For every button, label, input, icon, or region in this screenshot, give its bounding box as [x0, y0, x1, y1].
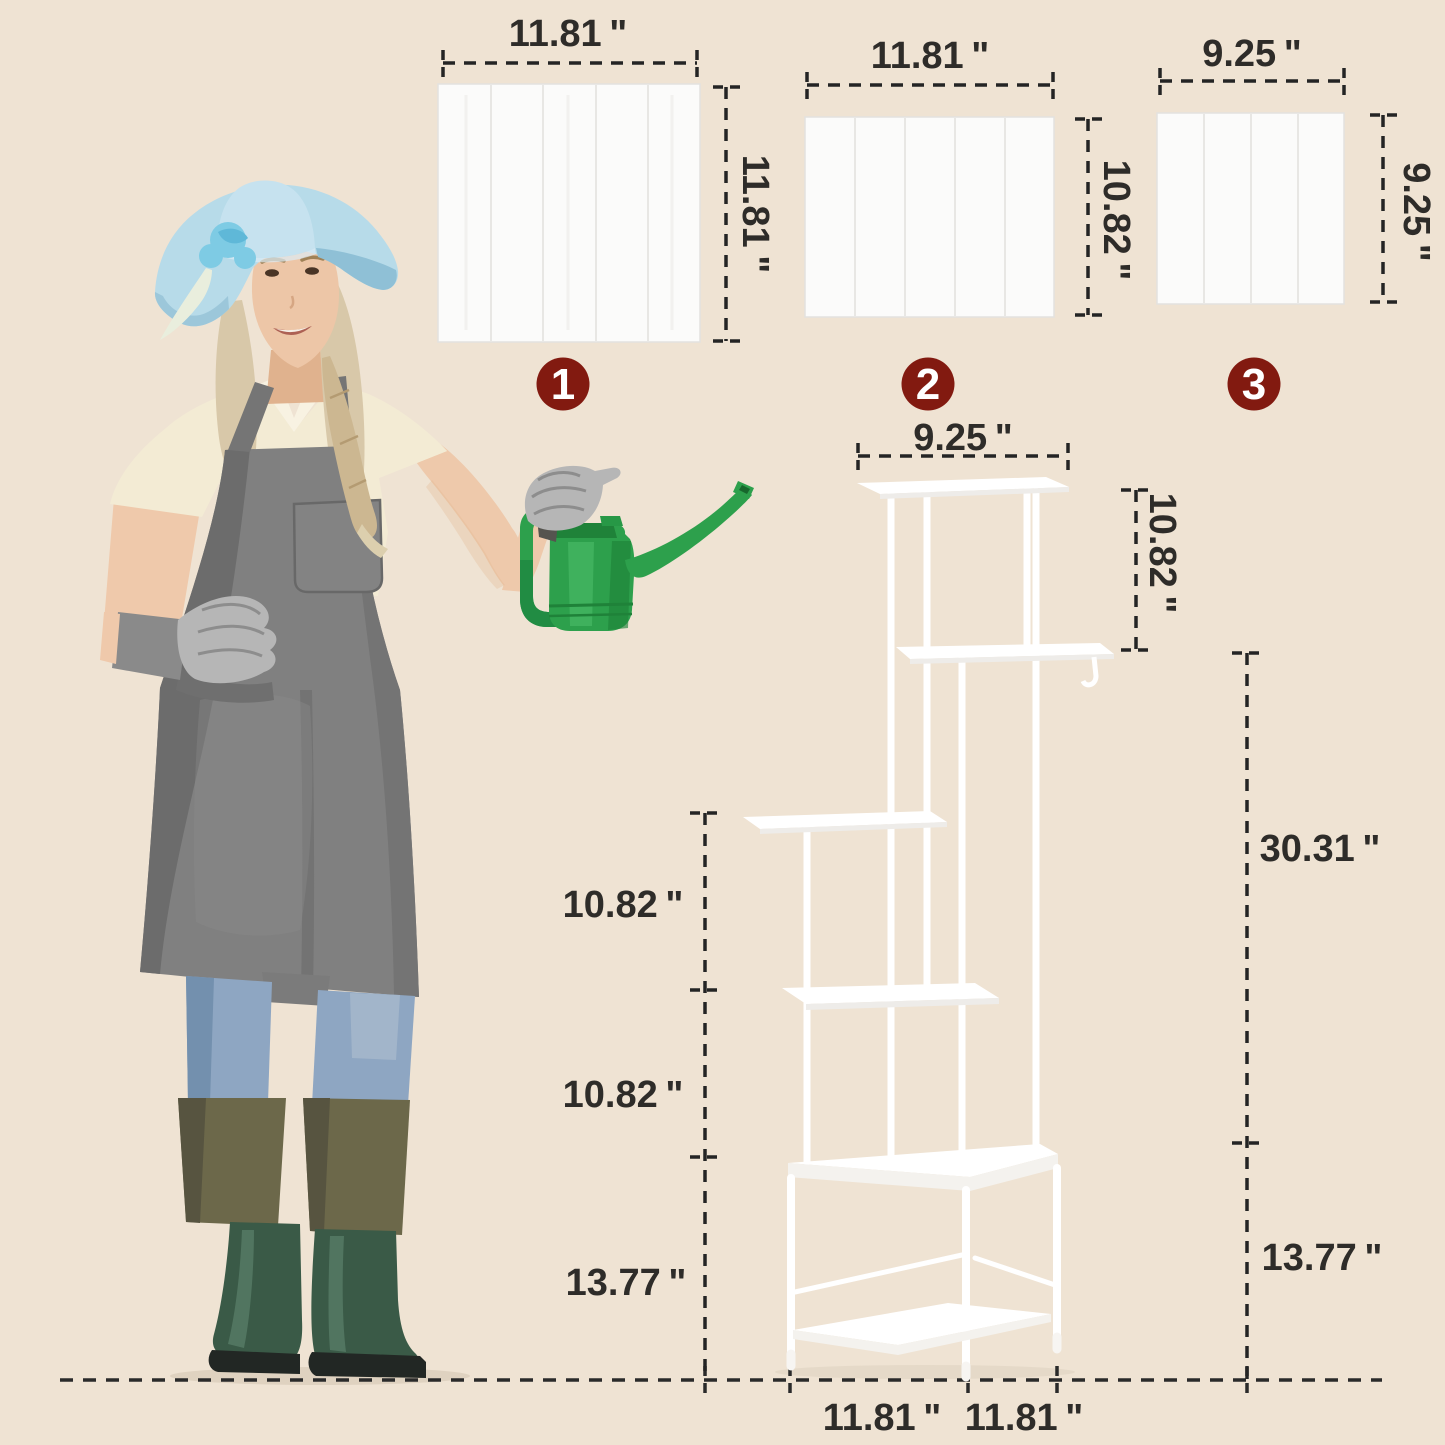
svg-text:13.77 ": 13.77 " — [1262, 1237, 1383, 1279]
svg-text:9.25 ": 9.25 " — [913, 417, 1013, 459]
svg-text:10.82 ": 10.82 " — [563, 884, 684, 926]
svg-text:9.25 ": 9.25 " — [1395, 162, 1437, 262]
svg-text:2: 2 — [916, 360, 940, 409]
svg-text:11.81 ": 11.81 " — [823, 1397, 942, 1439]
svg-text:11.81 ": 11.81 " — [965, 1397, 1084, 1439]
svg-text:13.77 ": 13.77 " — [566, 1262, 687, 1304]
svg-text:10.82 ": 10.82 " — [563, 1074, 684, 1116]
svg-text:3: 3 — [1242, 360, 1266, 409]
svg-text:11.81 ": 11.81 " — [734, 155, 776, 274]
svg-text:11.81 ": 11.81 " — [871, 35, 990, 77]
svg-text:1: 1 — [551, 360, 575, 409]
svg-text:11.81 ": 11.81 " — [509, 13, 628, 55]
svg-text:10.82 ": 10.82 " — [1095, 160, 1137, 281]
svg-text:30.31 ": 30.31 " — [1260, 828, 1381, 870]
svg-text:9.25 ": 9.25 " — [1202, 33, 1302, 75]
svg-text:10.82 ": 10.82 " — [1141, 493, 1183, 614]
